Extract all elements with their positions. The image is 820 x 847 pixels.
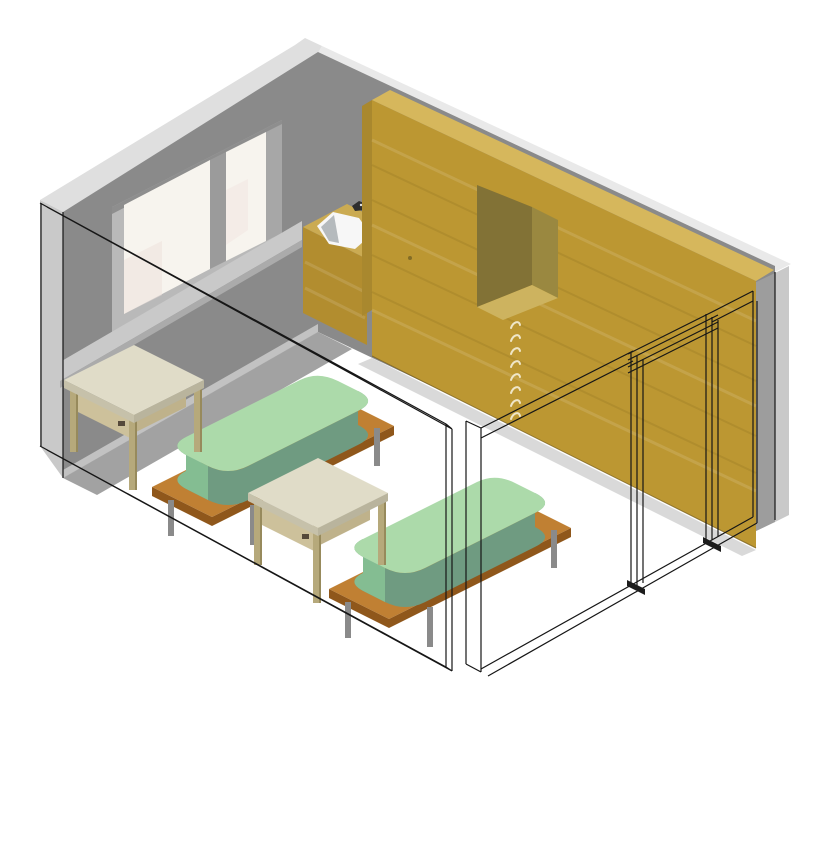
window-mullion: [210, 152, 226, 269]
table-leg-left-shade: [260, 499, 262, 565]
table-leg-right-shade: [200, 386, 202, 452]
bed-leg: [374, 428, 380, 466]
drawer-pull-dark: [302, 534, 309, 539]
table-leg-left: [254, 499, 260, 565]
drawer-pull-dark: [118, 421, 125, 426]
niche-right-jamb: [532, 207, 558, 298]
wardrobe-left-side: [362, 100, 372, 316]
table-leg-right: [378, 499, 384, 565]
table-leg-right-shade: [384, 499, 386, 565]
table-leg-left: [70, 386, 76, 452]
bed-leg: [427, 607, 433, 647]
faucet-highlight: [360, 204, 362, 206]
right-wall-cut-strip: [775, 266, 789, 522]
render-canvas: [0, 0, 820, 847]
table-leg-front: [129, 419, 135, 490]
table-leg-right: [194, 386, 200, 452]
table-leg-front-shade: [135, 419, 137, 490]
keyhole-dot: [408, 256, 412, 260]
table-leg-front: [313, 532, 319, 603]
window-frame-right: [266, 124, 282, 241]
viewport-3d[interactable]: [0, 0, 820, 847]
table-leg-front-shade: [319, 532, 321, 603]
table-leg-left-shade: [76, 386, 78, 452]
left-wall-cut-strip: [40, 200, 63, 478]
bed-leg: [345, 602, 351, 638]
bed-leg: [551, 530, 557, 568]
